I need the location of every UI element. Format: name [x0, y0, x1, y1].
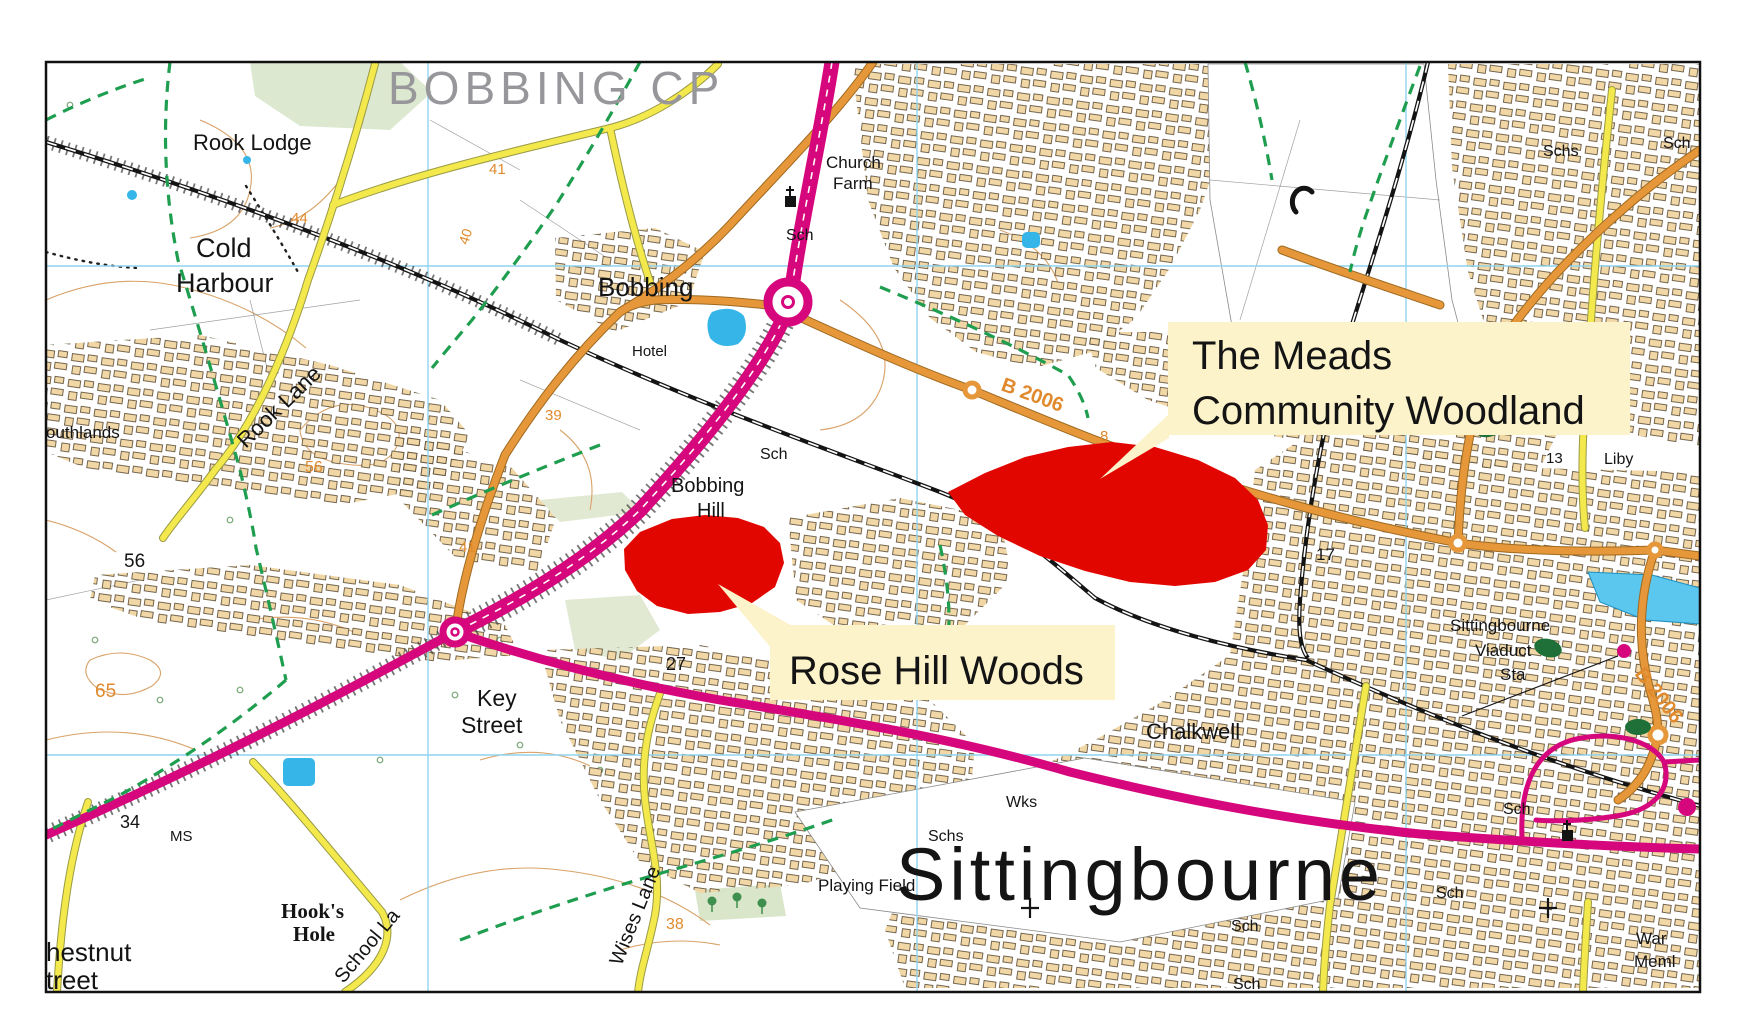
height-27: 27 [666, 654, 686, 674]
town-label: Sittingbourne [896, 833, 1384, 916]
label-schs-a: Schs [928, 828, 964, 845]
label-bobbing-hill-2: Hill [697, 500, 725, 522]
label-sch-church-farm: Sch [786, 227, 814, 244]
label-sch-d: Sch [1503, 801, 1531, 818]
rosehill-callout-label: Rose Hill Woods [789, 649, 1084, 693]
meads-callout-line2: Community Woodland [1192, 389, 1585, 433]
road-a2-west [46, 632, 455, 835]
map-content: BOBBING CP Rook Lodge Cold Harbour Bobbi… [46, 62, 1700, 995]
pond-rook-lodge [243, 156, 251, 164]
label-viaduct-1: Sittingbourne [1450, 616, 1550, 635]
station-dot-east [1678, 798, 1696, 816]
church-symbol-bobbing [785, 196, 796, 207]
label-church-farm-1: Church [826, 153, 881, 172]
height-38: 38 [666, 916, 684, 933]
os-map-screenshot: BOBBING CP Rook Lodge Cold Harbour Bobbi… [0, 0, 1753, 1020]
label-viaduct-3: Sta [1500, 665, 1526, 684]
label-cold-harbour-1: Cold [196, 233, 252, 263]
label-liby: Liby [1604, 451, 1633, 468]
road-loop-stub [1664, 760, 1700, 762]
label-war-meml-1: War [1636, 929, 1667, 948]
label-sch-b: Sch [1231, 918, 1259, 935]
roundabout-east-1 [1451, 536, 1465, 550]
label-bobbing-hill-1: Bobbing [671, 475, 744, 497]
label-hooks-hole-2: Hole [293, 922, 335, 946]
parish-label: BOBBING CP [388, 62, 724, 114]
roundabout-east-2 [1649, 544, 1661, 556]
roundabout-b2006-a2 [1650, 727, 1666, 743]
rosehill-woods-area [624, 515, 784, 614]
map-canvas: BOBBING CP Rook Lodge Cold Harbour Bobbi… [0, 0, 1753, 1020]
church-symbol-town [1562, 830, 1573, 841]
label-war-meml-2: Meml [1634, 952, 1676, 971]
label-church-farm-2: Farm [833, 174, 873, 193]
height-41-mid: 41 [459, 539, 476, 556]
label-key-street-1: Key [477, 685, 517, 711]
height-17: 17 [1316, 545, 1335, 564]
label-schs-ne: Schs [1543, 143, 1579, 160]
height-34: 34 [120, 812, 140, 832]
pond-ne [1022, 232, 1040, 248]
label-chalkwell: Chalkwell [1146, 719, 1240, 744]
height-56-black: 56 [124, 551, 145, 572]
label-hooks-hole-1: Hook's [281, 899, 344, 923]
label-rook-lodge: Rook Lodge [193, 130, 312, 155]
height-41-top: 41 [489, 161, 506, 178]
station-dot-viaduct [1617, 644, 1631, 658]
height-56-orange: 56 [305, 459, 323, 476]
height-13: 13 [1546, 450, 1563, 467]
height-39: 39 [545, 407, 562, 424]
label-cold-harbour-2: Harbour [176, 268, 274, 298]
copse-3 [1625, 719, 1651, 735]
label-wks: Wks [1006, 794, 1037, 811]
meads-callout-line1: The Meads [1192, 334, 1392, 378]
label-southlands: outhlands [46, 423, 120, 442]
label-ms: MS [170, 828, 193, 845]
height-8: 8 [1100, 428, 1108, 445]
height-65: 65 [95, 681, 116, 702]
height-44: 44 [291, 210, 308, 227]
label-viaduct-2: Viaduct [1475, 641, 1532, 660]
label-chestnut-2: treet [46, 965, 99, 995]
label-sch-bobbing-hill: Sch [760, 446, 788, 463]
label-sch-c: Sch [1233, 976, 1261, 993]
label-sch-e: Sch [1436, 885, 1464, 902]
label-hotel: Hotel [632, 343, 667, 360]
pond-southwest [283, 758, 315, 786]
pond-west [127, 190, 137, 200]
label-key-street-2: Street [461, 712, 523, 738]
roundabout-b2006-mini [965, 383, 979, 397]
height-40: 40 [455, 226, 475, 246]
label-chestnut-1: hestnut [46, 937, 132, 967]
hotel-pool [707, 309, 746, 346]
label-sch-ne: Sch [1663, 135, 1691, 152]
label-bobbing: Bobbing [598, 272, 693, 302]
